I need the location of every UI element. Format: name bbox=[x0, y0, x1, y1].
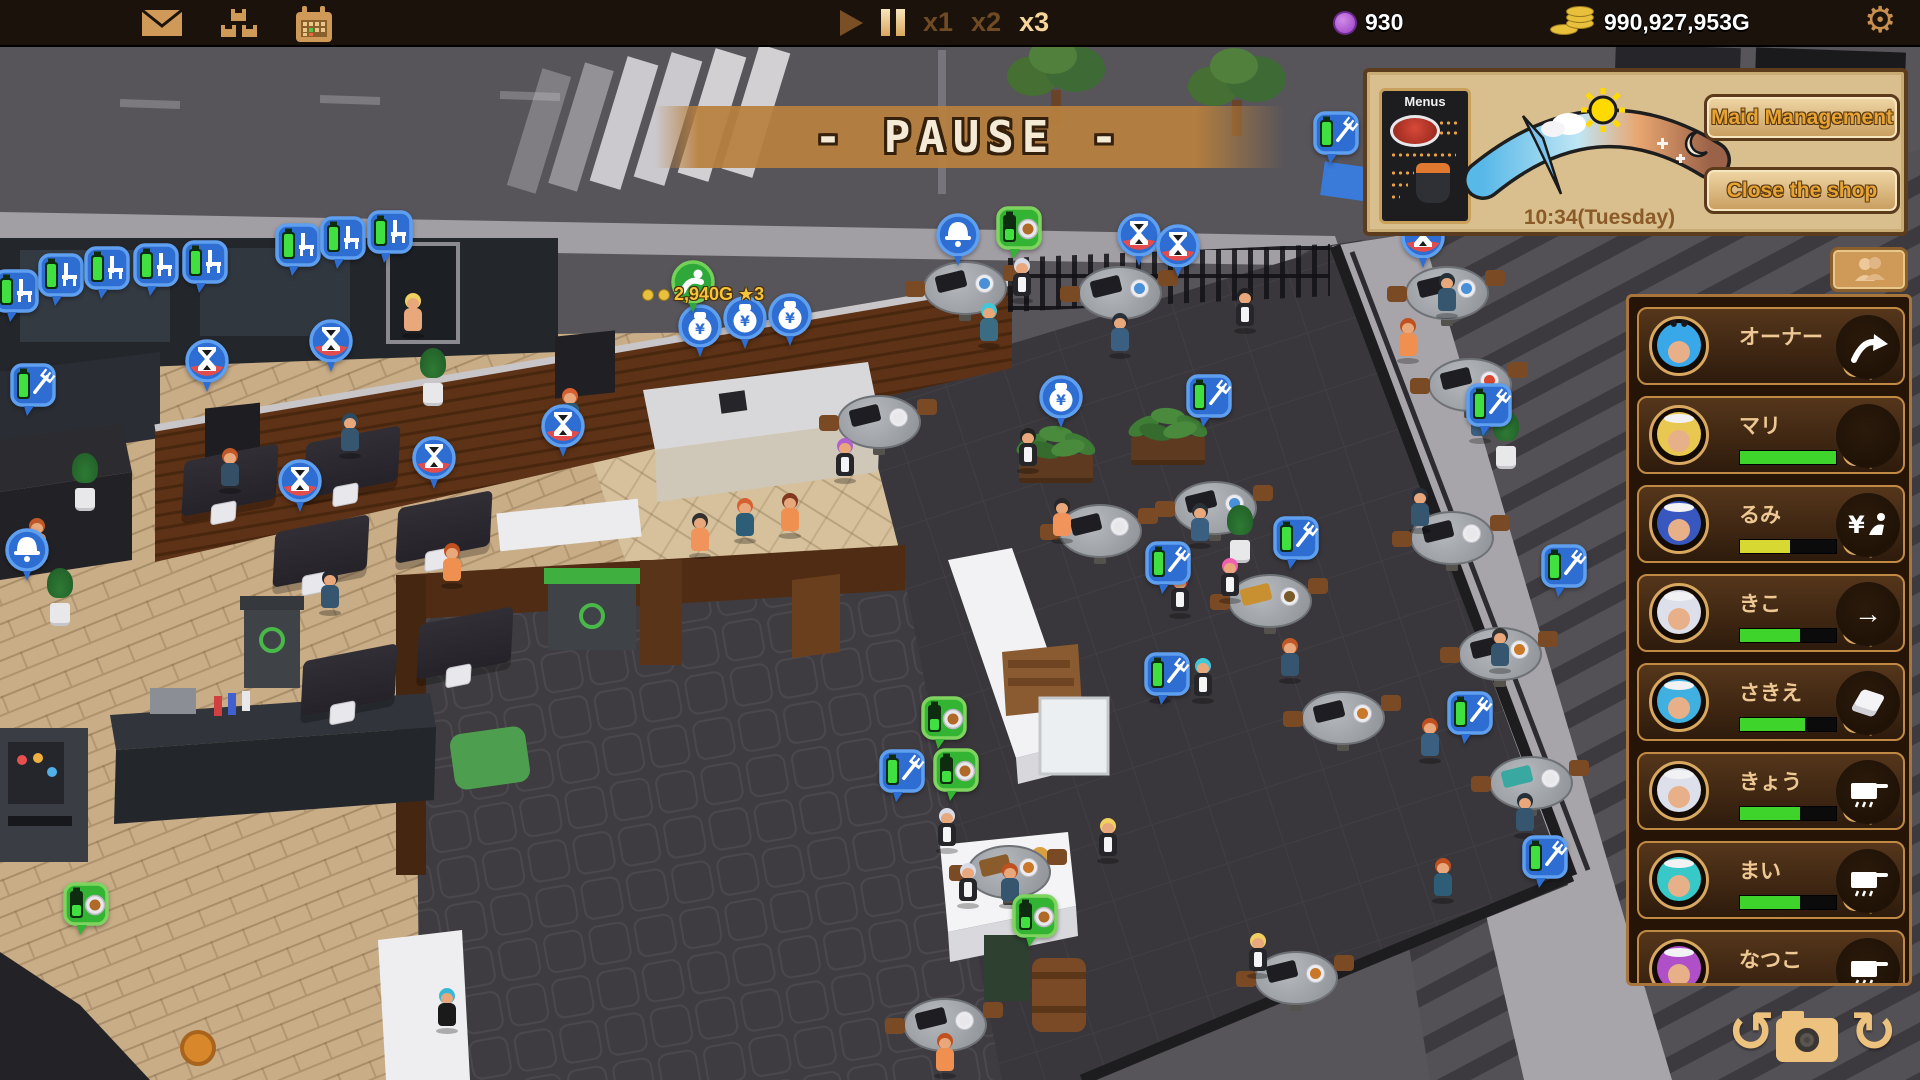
gold-coins-icon bbox=[1550, 8, 1596, 38]
pause-banner-text: - PAUSE - bbox=[815, 112, 1125, 163]
maid-progress bbox=[1739, 628, 1837, 643]
status-pin-chairq bbox=[83, 245, 131, 303]
character[interactable] bbox=[1233, 288, 1257, 334]
pause-button[interactable] bbox=[881, 9, 905, 36]
crates-icon[interactable] bbox=[216, 4, 264, 42]
play-button[interactable] bbox=[840, 10, 863, 36]
status-pin-hourglass bbox=[307, 317, 355, 375]
staff-list-toggle-button[interactable] bbox=[1830, 247, 1908, 292]
maid-row[interactable]: マリ bbox=[1637, 396, 1905, 474]
character[interactable] bbox=[1246, 933, 1270, 979]
menus-card[interactable]: Menus bbox=[1379, 88, 1471, 224]
maid-name: るみ bbox=[1739, 499, 1781, 529]
speed-x3-button[interactable]: x3 bbox=[1019, 7, 1049, 38]
shop-status-panel: Menus bbox=[1363, 68, 1908, 236]
maid-name: きょう bbox=[1739, 766, 1802, 796]
gold-currency: 990,927,953G bbox=[1550, 0, 1750, 45]
maid-action-arrow-icon[interactable]: → bbox=[1836, 582, 1900, 646]
maid-row[interactable]: オーナー bbox=[1637, 307, 1905, 385]
potted-plant bbox=[70, 453, 100, 511]
maid-roster-panel: オーナーマリるみ¥きこ→さきえきょうまいなつこ bbox=[1626, 294, 1912, 986]
menu-dish-icon bbox=[1390, 115, 1440, 147]
maid-row[interactable]: きこ→ bbox=[1637, 574, 1905, 652]
character[interactable] bbox=[1108, 313, 1132, 359]
status-pin-hourglass bbox=[183, 337, 231, 395]
status-pin-chairq bbox=[0, 268, 40, 326]
character[interactable] bbox=[933, 1033, 957, 1079]
dining-table[interactable] bbox=[300, 643, 397, 717]
status-pin-batfork bbox=[878, 748, 926, 806]
character[interactable] bbox=[688, 513, 712, 559]
maid-row[interactable]: まい bbox=[1637, 841, 1905, 919]
character[interactable] bbox=[435, 988, 459, 1034]
character[interactable] bbox=[935, 808, 959, 854]
character[interactable] bbox=[778, 493, 802, 539]
character[interactable] bbox=[977, 303, 1001, 349]
settings-gear-icon[interactable]: ⚙ bbox=[1864, 1, 1896, 39]
ticket-coin-icon bbox=[1333, 11, 1357, 35]
status-pin-batfork bbox=[9, 362, 57, 420]
status-pin-greenfood bbox=[995, 205, 1043, 263]
svg-text:¥: ¥ bbox=[785, 311, 795, 327]
status-pin-batfork bbox=[1465, 382, 1513, 440]
top-bar: x1 x2 x3 930 990,927,953G ⚙ bbox=[0, 0, 1920, 47]
maid-avatar bbox=[1649, 405, 1709, 465]
maid-name: なつこ bbox=[1739, 944, 1802, 974]
character[interactable] bbox=[1418, 718, 1442, 764]
status-pin-batfork bbox=[1144, 540, 1192, 598]
menu-bowl-icon bbox=[1416, 163, 1450, 203]
status-pin-moneybag: ¥ bbox=[766, 291, 814, 349]
maid-action-pot-icon[interactable] bbox=[1836, 849, 1900, 913]
maid-avatar bbox=[1649, 494, 1709, 554]
close-shop-button[interactable]: Close the shop bbox=[1704, 167, 1900, 214]
maid-progress bbox=[1739, 450, 1837, 465]
status-pin-chairq bbox=[132, 242, 180, 300]
dining-table[interactable] bbox=[416, 606, 513, 680]
svg-text:¥: ¥ bbox=[1056, 393, 1066, 409]
character[interactable] bbox=[956, 863, 980, 909]
maid-row[interactable]: きょう bbox=[1637, 752, 1905, 830]
mail-icon[interactable] bbox=[138, 4, 186, 40]
status-pin-chairq bbox=[366, 209, 414, 267]
ticket-currency: 930 bbox=[1333, 0, 1403, 45]
maid-action-yen-icon[interactable]: ¥ bbox=[1836, 493, 1900, 557]
speed-x2-button[interactable]: x2 bbox=[971, 7, 1001, 38]
character[interactable] bbox=[1050, 498, 1074, 544]
maid-progress bbox=[1739, 717, 1837, 732]
maid-name: オーナー bbox=[1739, 321, 1823, 351]
status-pin-bell bbox=[934, 211, 982, 269]
maid-progress bbox=[1739, 806, 1837, 821]
status-pin-batfork bbox=[1540, 543, 1588, 601]
status-pin-chairq bbox=[37, 252, 85, 310]
character[interactable] bbox=[218, 448, 242, 494]
ticket-amount: 930 bbox=[1365, 9, 1403, 36]
character[interactable] bbox=[1218, 558, 1242, 604]
camera-icon[interactable] bbox=[1776, 1018, 1838, 1062]
maid-action-none-icon[interactable] bbox=[1836, 404, 1900, 468]
maid-management-button[interactable]: Maid Management bbox=[1704, 94, 1900, 141]
rotate-left-icon[interactable]: ↺ bbox=[1728, 1004, 1775, 1060]
status-pin-hourglass bbox=[276, 457, 324, 515]
menus-label: Menus bbox=[1382, 94, 1468, 109]
potted-plant bbox=[1225, 505, 1255, 563]
reward-text: 2,940G ★3 bbox=[674, 284, 764, 305]
maid-name: さきえ bbox=[1739, 677, 1802, 707]
character[interactable] bbox=[1278, 638, 1302, 684]
character[interactable] bbox=[1408, 488, 1432, 534]
status-pin-chairq bbox=[274, 222, 322, 280]
svg-text:¥: ¥ bbox=[695, 322, 705, 338]
character[interactable] bbox=[1010, 258, 1034, 304]
pause-banner: - PAUSE - bbox=[655, 106, 1285, 168]
character[interactable] bbox=[1431, 858, 1455, 904]
terrace-table[interactable] bbox=[1301, 691, 1385, 753]
character[interactable] bbox=[1488, 628, 1512, 674]
calendar-icon[interactable] bbox=[292, 4, 336, 44]
character[interactable] bbox=[401, 293, 425, 339]
character[interactable] bbox=[1396, 318, 1420, 364]
status-pin-hourglass bbox=[410, 434, 458, 492]
status-pin-batfork bbox=[1272, 515, 1320, 573]
status-pin-batfork bbox=[1312, 110, 1360, 168]
character[interactable] bbox=[1513, 793, 1537, 839]
maid-avatar bbox=[1649, 672, 1709, 732]
character[interactable] bbox=[318, 570, 342, 616]
maid-row[interactable]: さきえ bbox=[1637, 663, 1905, 741]
character[interactable] bbox=[338, 413, 362, 459]
status-pin-hourglass bbox=[539, 402, 587, 460]
character[interactable] bbox=[440, 543, 464, 589]
status-pin-hourglass bbox=[1154, 222, 1202, 280]
reward-popup: 2,940G ★3 bbox=[642, 284, 764, 305]
speed-x1-button[interactable]: x1 bbox=[923, 7, 953, 38]
status-pin-batfork bbox=[1185, 373, 1233, 431]
maid-action-pot-icon[interactable] bbox=[1836, 760, 1900, 824]
status-pin-batfork bbox=[1521, 834, 1569, 892]
gold-amount: 990,927,953G bbox=[1604, 9, 1750, 36]
time-label: 10:34(Tuesday) bbox=[1467, 206, 1732, 230]
coin-icon bbox=[658, 289, 670, 301]
status-pin-chairq bbox=[319, 215, 367, 273]
status-pin-greenfood bbox=[920, 695, 968, 753]
maid-action-share-icon[interactable] bbox=[1836, 315, 1900, 379]
maid-avatar bbox=[1649, 316, 1709, 376]
status-pin-greenfood bbox=[1011, 893, 1059, 951]
character[interactable] bbox=[733, 498, 757, 544]
maid-name: きこ bbox=[1739, 588, 1781, 618]
game-stage[interactable]: ¥ ¥ ¥ ¥ 2,94 bbox=[0, 0, 1920, 1080]
status-pin-bell bbox=[3, 526, 51, 584]
status-pin-chairq bbox=[181, 239, 229, 297]
status-pin-batfork bbox=[1143, 651, 1191, 709]
maid-avatar bbox=[1649, 850, 1709, 910]
maid-row[interactable]: るみ¥ bbox=[1637, 485, 1905, 563]
svg-text:¥: ¥ bbox=[740, 314, 750, 330]
maid-progress bbox=[1739, 895, 1837, 910]
status-pin-moneybag: ¥ bbox=[1037, 373, 1085, 431]
maid-name: まい bbox=[1739, 855, 1781, 885]
status-pin-greenfood bbox=[62, 881, 110, 939]
people-icon bbox=[1849, 255, 1889, 285]
status-pin-greenfood bbox=[932, 747, 980, 805]
rotate-right-icon[interactable]: ↻ bbox=[1850, 1004, 1897, 1060]
potted-plant bbox=[418, 348, 448, 406]
maid-avatar bbox=[1649, 939, 1709, 986]
maid-action-pot-icon[interactable] bbox=[1836, 938, 1900, 986]
coin-icon bbox=[642, 289, 654, 301]
maid-progress bbox=[1739, 539, 1837, 554]
maid-action-napkin-icon[interactable] bbox=[1836, 671, 1900, 735]
maid-name: マリ bbox=[1739, 410, 1781, 440]
character[interactable] bbox=[833, 438, 857, 484]
day-progress-gauge bbox=[1465, 80, 1733, 206]
status-pin-batfork bbox=[1446, 690, 1494, 748]
maid-avatar bbox=[1649, 583, 1709, 643]
character[interactable] bbox=[1435, 273, 1459, 319]
maid-row[interactable]: なつこ bbox=[1637, 930, 1905, 986]
character[interactable] bbox=[1096, 818, 1120, 864]
character[interactable] bbox=[1016, 428, 1040, 474]
maid-avatar bbox=[1649, 761, 1709, 821]
character[interactable] bbox=[1191, 658, 1215, 704]
